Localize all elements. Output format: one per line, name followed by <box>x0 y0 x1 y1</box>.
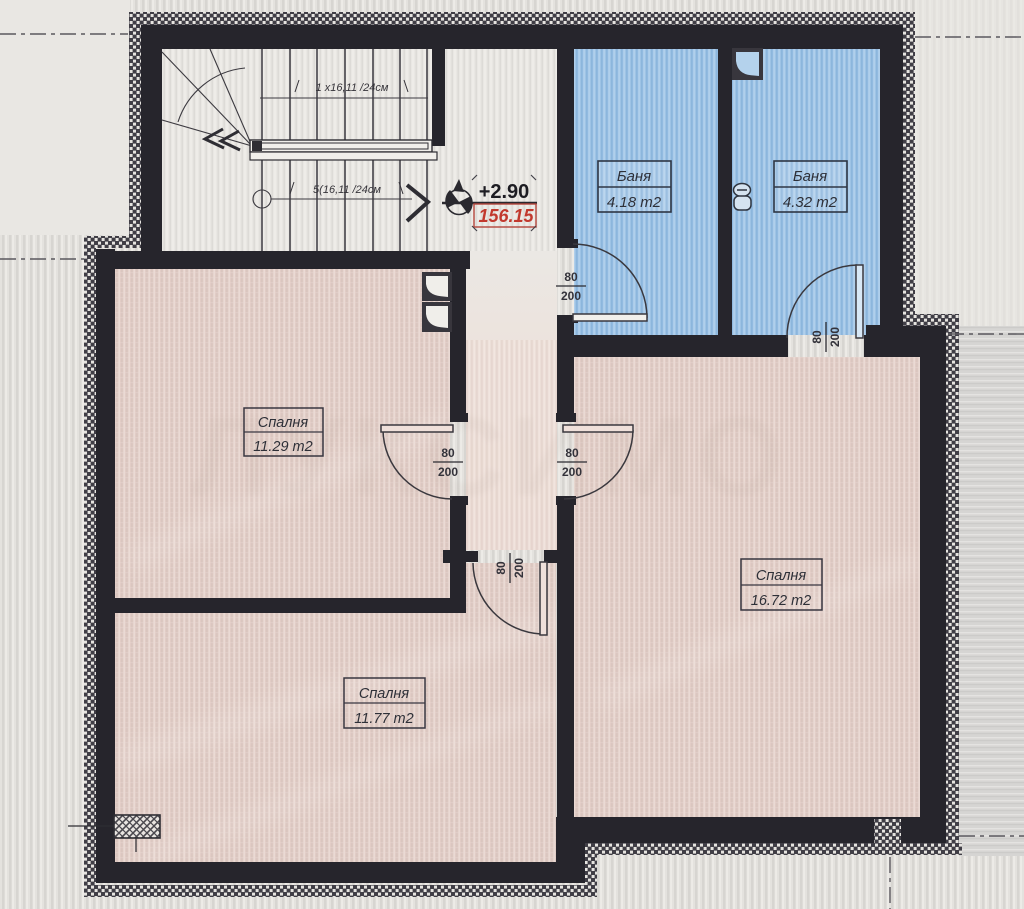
svg-text:80: 80 <box>494 561 508 575</box>
svg-text:11.77 m2: 11.77 m2 <box>354 711 413 727</box>
svg-text:200: 200 <box>561 289 581 303</box>
svg-text:80: 80 <box>810 330 824 344</box>
svg-text:Спалня: Спалня <box>359 686 410 702</box>
svg-text:4.32 m2: 4.32 m2 <box>783 194 838 211</box>
svg-text:156.15: 156.15 <box>478 206 534 226</box>
svg-text:Спалня: Спалня <box>258 415 309 431</box>
svg-text:80: 80 <box>564 270 578 284</box>
svg-text:Баня: Баня <box>617 168 651 185</box>
svg-text:5(16,11 /24см: 5(16,11 /24см <box>313 184 381 196</box>
svg-text:200: 200 <box>438 465 458 479</box>
svg-text:200: 200 <box>562 465 582 479</box>
svg-text:80: 80 <box>441 446 455 460</box>
svg-text:16.72 m2: 16.72 m2 <box>751 593 811 609</box>
svg-text:Баня: Баня <box>793 168 827 185</box>
svg-text:200: 200 <box>828 327 842 347</box>
svg-text:200: 200 <box>512 558 526 578</box>
svg-text:4.18 m2: 4.18 m2 <box>607 194 662 211</box>
svg-text:+2.90: +2.90 <box>479 181 530 203</box>
svg-text:Спалня: Спалня <box>756 568 807 584</box>
svg-text:11.29 m2: 11.29 m2 <box>253 439 312 455</box>
svg-text:80: 80 <box>565 446 579 460</box>
svg-text:1 x16,11 /24см: 1 x16,11 /24см <box>316 82 389 94</box>
